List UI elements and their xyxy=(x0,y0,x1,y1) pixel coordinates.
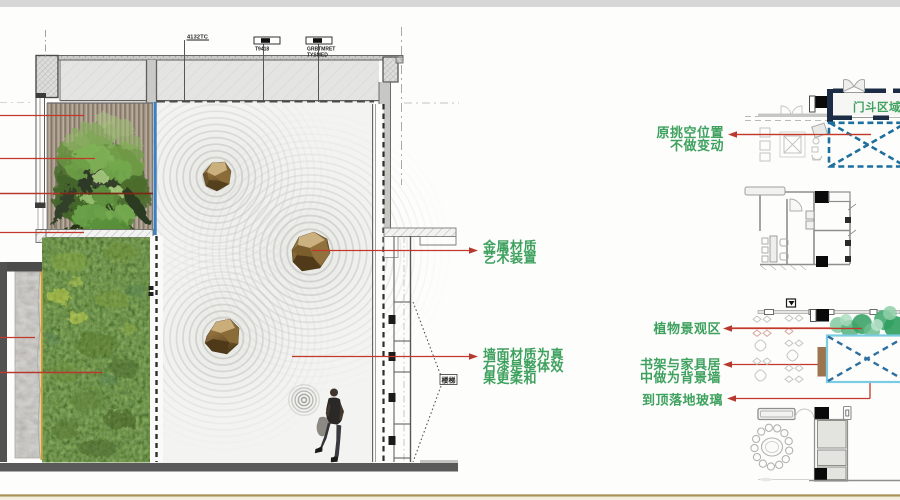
svg-text:艺术装置: 艺术装置 xyxy=(483,251,537,266)
svg-text:楼梯: 楼梯 xyxy=(442,376,456,385)
svg-text:TYSMED: TYSMED xyxy=(307,53,328,59)
svg-text:果更柔和: 果更柔和 xyxy=(482,371,537,386)
svg-text:到顶落地玻璃: 到顶落地玻璃 xyxy=(642,393,723,408)
svg-text:植物景观区: 植物景观区 xyxy=(652,321,721,336)
svg-text:不做变动: 不做变动 xyxy=(670,138,724,153)
svg-text:T9418: T9418 xyxy=(255,47,269,53)
svg-text:门斗区域: 门斗区域 xyxy=(853,100,900,114)
svg-text:中做为背景墙: 中做为背景墙 xyxy=(640,370,721,385)
